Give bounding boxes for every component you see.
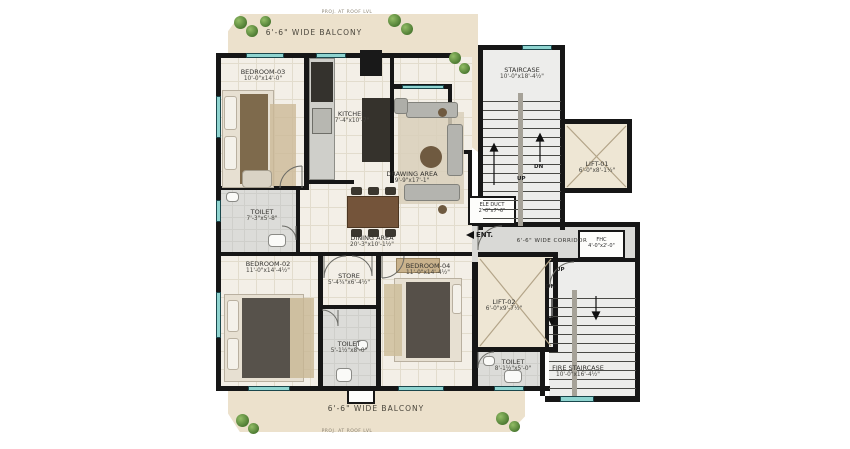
window	[248, 386, 290, 391]
wall	[390, 53, 394, 183]
armchair	[394, 98, 408, 114]
room-name: KITCHEN	[335, 110, 370, 118]
kitchen-counter-right	[362, 98, 390, 162]
plant	[388, 14, 401, 27]
room-dims: 5'-4¾"x6'-4½"	[328, 280, 370, 288]
window	[398, 386, 444, 391]
wall	[376, 252, 381, 391]
bedroom4-label: BEDROOM-04 11'-0"x14'-4½"	[406, 262, 451, 278]
toilet-wc	[336, 368, 352, 382]
bed-blanket	[406, 282, 450, 358]
wall	[304, 180, 354, 184]
staircase-divider	[518, 93, 523, 226]
corridor-name: 6'-6" WIDE CORRIDOR	[517, 238, 588, 245]
kitchen-flue-duct	[360, 50, 382, 76]
plant	[496, 412, 509, 425]
rug	[290, 298, 314, 378]
toilet-wc	[268, 234, 286, 247]
entrance-label: ENT.	[476, 231, 493, 239]
window	[494, 386, 524, 391]
store-label: STORE 5'-4¾"x6'-4½"	[328, 272, 370, 288]
toilet2-label: TOILET 5'-1½"x8'-0"	[331, 340, 368, 356]
room-dims: 6'-0"x9'-7½"	[486, 306, 523, 314]
wall	[472, 262, 478, 391]
armchair	[242, 170, 272, 188]
coffee-table	[420, 146, 442, 168]
chair	[351, 187, 362, 195]
bottom-duct-box	[347, 389, 375, 404]
wall	[216, 252, 472, 256]
room-dims: 10'-0"x18'-4½"	[500, 74, 544, 82]
floor-plan: ELE DUCT 2'-0"x7'-6" FHC 4'-0"x2'-0"	[0, 0, 850, 449]
plant	[246, 25, 258, 37]
bedroom3-label: BEDROOM-03 10'-0"x14'-0"	[241, 68, 286, 84]
pillow	[227, 300, 239, 332]
plant	[449, 52, 461, 64]
fire-staircase-label: FIRE STAIRCASE 10'-0"x16'-4½"	[552, 364, 604, 380]
window	[560, 396, 594, 402]
window	[216, 292, 221, 338]
lift1-label: LIFT-01 6'-0"x8'-1½"	[579, 160, 616, 176]
room-dims: 8'-1½"x5'-0"	[495, 366, 532, 374]
wall	[560, 188, 632, 193]
up-label: UP	[556, 267, 565, 273]
toilet1-label: TOILET 7'-3"x5'-8"	[247, 208, 278, 224]
side-table	[438, 205, 447, 214]
wall	[627, 119, 632, 193]
plant	[248, 423, 259, 434]
kitchen-sink	[312, 108, 332, 134]
pillow	[452, 284, 462, 314]
toilet-sink	[226, 192, 239, 202]
lift2-label: LIFT-02 6'-0"x9'-7½"	[486, 298, 523, 314]
plant	[236, 414, 249, 427]
plant	[401, 23, 413, 35]
room-dims: 10'-0"x16'-4½"	[552, 372, 604, 380]
dn-label: DN	[534, 164, 543, 170]
up-label: UP	[517, 176, 526, 182]
pillow	[224, 96, 237, 130]
toilet-sink	[483, 356, 495, 366]
room-dims: 5'-1½"x8'-0"	[331, 348, 368, 356]
plant	[459, 63, 470, 74]
window	[402, 85, 444, 89]
fire-staircase-divider	[572, 290, 577, 396]
plant	[234, 16, 247, 29]
wall	[296, 186, 300, 256]
pillow	[224, 136, 237, 170]
plant	[509, 421, 520, 432]
rug	[384, 284, 402, 356]
dining-table	[347, 196, 399, 228]
plant	[260, 16, 271, 27]
window	[216, 200, 221, 222]
sofa	[406, 102, 458, 118]
room-dims: 11'-0"x14'-4½"	[406, 270, 451, 278]
kitchen-label: KITCHEN 7'-4"x10'-7"	[335, 110, 370, 126]
room-name: DRAWING AREA	[386, 170, 437, 178]
fire-staircase-treads	[549, 290, 636, 396]
corridor-label: 6'-6" WIDE CORRIDOR	[517, 238, 588, 245]
entrance-arrow-icon	[466, 231, 474, 239]
room-dims: 7'-3"x5'-8"	[247, 216, 278, 224]
balcony-top-label: 6'-6" WIDE BALCONY	[266, 28, 362, 37]
drawing-area-label: DRAWING AREA 9'-9"x17'-1"	[386, 170, 437, 186]
lift1-floor	[565, 124, 628, 188]
proj-top-label: PROJ. AT ROOF LVL	[322, 10, 373, 15]
chair	[368, 187, 379, 195]
kitchen-stove	[311, 62, 333, 102]
wall	[560, 119, 632, 124]
toilet3-label: TOILET 8'-1½"x5'-0"	[495, 358, 532, 374]
bed-blanket	[242, 298, 290, 378]
proj-bottom-label: PROJ. AT ROOF LVL	[322, 429, 373, 434]
dn-label: DN	[546, 284, 555, 290]
room-dims: 10'-0"x14'-0"	[241, 76, 286, 84]
bedroom2-label: BEDROOM-02 11'-0"x14'-4½"	[246, 260, 291, 276]
balcony-bottom-label: 6'-6" WIDE BALCONY	[328, 404, 424, 413]
wall	[468, 150, 472, 198]
room-dims: 11'-0"x14'-4½"	[246, 268, 291, 276]
dining-area-label: DINING AREA 20'-3"x10'-1½"	[350, 234, 394, 250]
wall	[478, 252, 558, 257]
wall	[318, 305, 381, 309]
room-name: BEDROOM-03	[241, 68, 286, 76]
room-dims: 9'-9"x17'-1"	[386, 178, 437, 186]
wall	[318, 252, 323, 391]
sofa	[447, 124, 463, 176]
sofa	[404, 184, 460, 201]
pillow	[227, 338, 239, 370]
window	[246, 53, 284, 58]
room-name: TOILET	[247, 208, 278, 216]
window	[522, 45, 552, 50]
staircase-label: STAIRCASE 10'-0"x18'-4½"	[500, 66, 544, 82]
side-table	[438, 108, 447, 117]
room-dims: 6'-0"x8'-1½"	[579, 168, 616, 176]
window	[216, 96, 221, 138]
rug	[270, 104, 296, 186]
room-dims: 7'-4"x10'-7"	[335, 118, 370, 126]
chair	[385, 187, 396, 195]
room-dims: 20'-3"x10'-1½"	[350, 242, 394, 250]
